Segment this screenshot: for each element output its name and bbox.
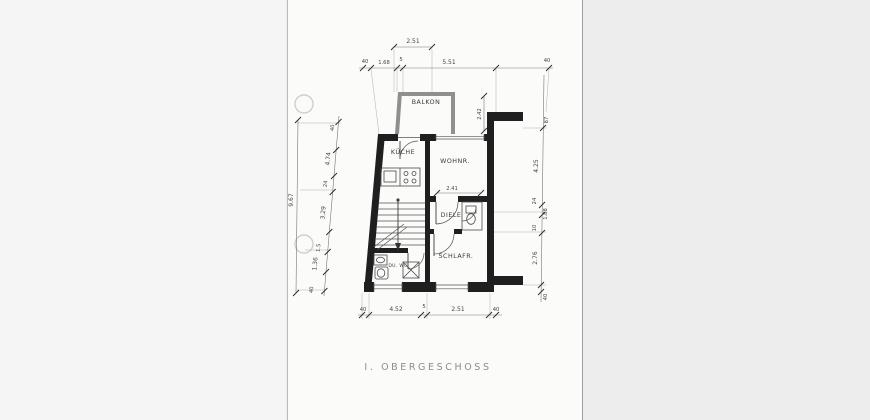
dim-label: 1.36 [311,257,319,271]
hole-punch-icon [295,235,313,253]
hole-punch-icon [295,95,313,113]
room-label-balkon: BALKON [412,99,441,106]
stove-burner-icon [412,179,416,183]
sink-icon [374,255,387,265]
dim-label: 40 [309,286,316,293]
dim-label: 2.51 [406,38,420,45]
left-exterior-wall [364,134,385,292]
room-labels: BALKON KÜCHE WOHNR. DIELE SCHLAFR. DU. W… [388,99,473,269]
scanned-floorplan-document: BALKON KÜCHE WOHNR. DIELE SCHLAFR. DU. W… [0,0,870,420]
dim-label: 40 [362,59,369,65]
balcony-wall [398,92,455,96]
room-label-wohnraum: WOHNR. [440,158,470,165]
dim-label: 24 [323,180,330,188]
dim-label: 10 [532,225,538,232]
dim-label: 87 [544,117,550,124]
kitchen-fixtures [381,168,420,186]
dim-label: 1.68 [378,60,390,66]
balcony-wall [395,92,402,134]
dim-label: 9.67 [288,193,295,207]
dim-label: 5 [422,304,425,310]
kitchen-sink-icon [384,171,396,182]
room-label-diele: DIELE [441,212,462,219]
dim-label: 5 [399,57,402,63]
room-label-kueche: KÜCHE [391,147,415,156]
dim-label: 40 [493,307,500,313]
dim-label: 2.51 [451,306,465,313]
window [436,283,468,292]
stove-burner-icon [404,172,408,176]
dim-label: 1.5 [316,244,323,253]
dim-label: 40 [543,294,549,301]
plan-caption: I. OBERGESCHOSS [364,362,491,373]
wc-bowl-icon [467,214,476,225]
floorplan-drawing: BALKON KÜCHE WOHNR. DIELE SCHLAFR. DU. W… [0,0,870,420]
room-label-schlafraum: SCHLAFR. [439,253,474,260]
dim-label: 3.29 [319,206,327,220]
dim-label: 2.42 [477,108,483,120]
dim-label: 40 [544,58,551,64]
balcony-wall [451,92,455,134]
wc-cistern-icon [466,206,476,213]
window [374,283,402,292]
dim-label: 4.52 [389,306,403,313]
staircase [374,198,425,251]
dim-label: 1.88 [543,208,549,220]
room-label-bad: DU. WC [388,263,407,269]
dim-label: 2.41 [446,186,458,192]
dim-label: 24 [532,197,538,204]
dim-label: 40 [360,307,367,313]
dim-label: 4.25 [533,159,540,173]
dim-label: 40 [330,124,337,131]
dim-label: 4.74 [324,152,332,166]
bath-door [408,253,424,269]
hole-punch-marks [295,95,313,253]
exterior-walls [364,92,523,292]
stove-burner-icon [404,179,408,183]
dim-label: 5.51 [442,59,456,66]
window [436,134,484,140]
stove-burner-icon [412,172,416,176]
dim-label: 2.76 [532,251,539,265]
